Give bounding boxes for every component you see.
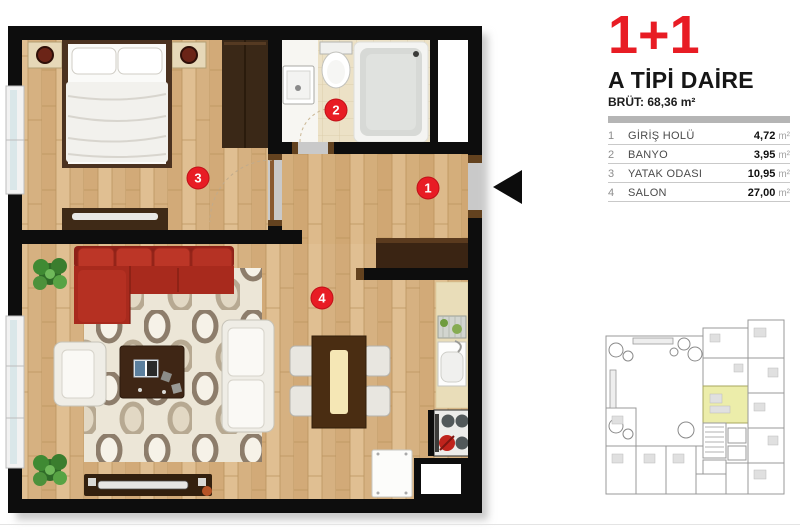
stove: [434, 410, 470, 456]
brochure-page: 1 2 3 4 1+1 A TİPİ DAİRE BRÜT: 68,36 m²: [0, 0, 800, 530]
badge-hall: 1: [417, 177, 439, 199]
bedroom-door-leaf: [270, 160, 274, 220]
bathroom-sink: [283, 66, 314, 104]
tv-console: [84, 474, 212, 496]
table-row: 4 SALON 27,00 m²: [608, 183, 790, 202]
svg-text:4: 4: [318, 291, 326, 306]
room-area: 27,00: [748, 187, 776, 199]
plan-type-title: 1+1: [608, 8, 790, 62]
nightstand-right: [172, 42, 206, 68]
room-number: 1: [608, 130, 628, 142]
dining-chair: [364, 346, 390, 376]
fridge: [372, 450, 412, 497]
bed: [62, 40, 172, 168]
stairwell: [703, 423, 726, 458]
room-area-table: 1 GİRİŞ HOLÜ 4,72 m² 2 BANYO 3,95 m² 3 Y…: [608, 126, 790, 202]
room-unit: m²: [778, 188, 790, 199]
gross-label: BRÜT:: [608, 95, 644, 109]
gross-area: BRÜT: 68,36 m²: [608, 95, 790, 109]
room-name: SALON: [628, 187, 748, 199]
apartment-type-title: A TİPİ DAİRE: [608, 67, 790, 94]
table-row: 1 GİRİŞ HOLÜ 4,72 m²: [608, 126, 790, 145]
badge-salon: 4: [311, 287, 333, 309]
svg-text:1: 1: [424, 181, 431, 196]
armchair-left: [54, 342, 106, 406]
loveseat-right: [222, 320, 274, 432]
page-divider: [0, 524, 800, 525]
coffee-table: [120, 346, 184, 398]
room-area: 3,95: [754, 149, 775, 161]
gross-value: 68,36 m²: [647, 95, 695, 109]
room-name: YATAK ODASI: [628, 168, 748, 180]
bathtub: [354, 42, 428, 142]
badge-bedroom: 3: [187, 167, 209, 189]
highlighted-unit: [703, 386, 748, 423]
room-area: 10,95: [748, 168, 776, 180]
room-name: BANYO: [628, 149, 754, 161]
room-unit: m²: [778, 131, 790, 142]
table-runner: [330, 350, 348, 414]
divider-bar: [608, 116, 790, 123]
living-window: [6, 316, 24, 468]
room-unit: m²: [778, 169, 790, 180]
room-number: 2: [608, 149, 628, 161]
kitchen-sink: [438, 341, 466, 386]
shaft-top: [438, 40, 468, 142]
nightstand-left: [28, 42, 62, 68]
room-area: 4,72: [754, 130, 775, 142]
bedroom-window: [6, 86, 24, 194]
site-plan: [598, 308, 790, 500]
room-name: GİRİŞ HOLÜ: [628, 130, 754, 142]
dish-rack: [438, 316, 466, 338]
toilet: [320, 42, 352, 88]
dining-chair: [364, 386, 390, 416]
room-unit: m²: [778, 150, 790, 161]
entrance-arrow-icon: [493, 170, 522, 204]
wardrobe: [222, 40, 268, 148]
room-number: 4: [608, 187, 628, 199]
shaft-bottom: [421, 464, 461, 494]
room-number: 3: [608, 168, 628, 180]
floor-plan: 1 2 3 4: [0, 0, 560, 530]
table-row: 3 YATAK ODASI 10,95 m²: [608, 164, 790, 183]
legend-panel: 1+1 A TİPİ DAİRE BRÜT: 68,36 m² 1 GİRİŞ …: [608, 8, 790, 202]
badge-bathroom: 2: [325, 99, 347, 121]
dresser: [62, 208, 168, 230]
table-row: 2 BANYO 3,95 m²: [608, 145, 790, 164]
svg-text:2: 2: [332, 103, 339, 118]
svg-text:3: 3: [194, 171, 201, 186]
